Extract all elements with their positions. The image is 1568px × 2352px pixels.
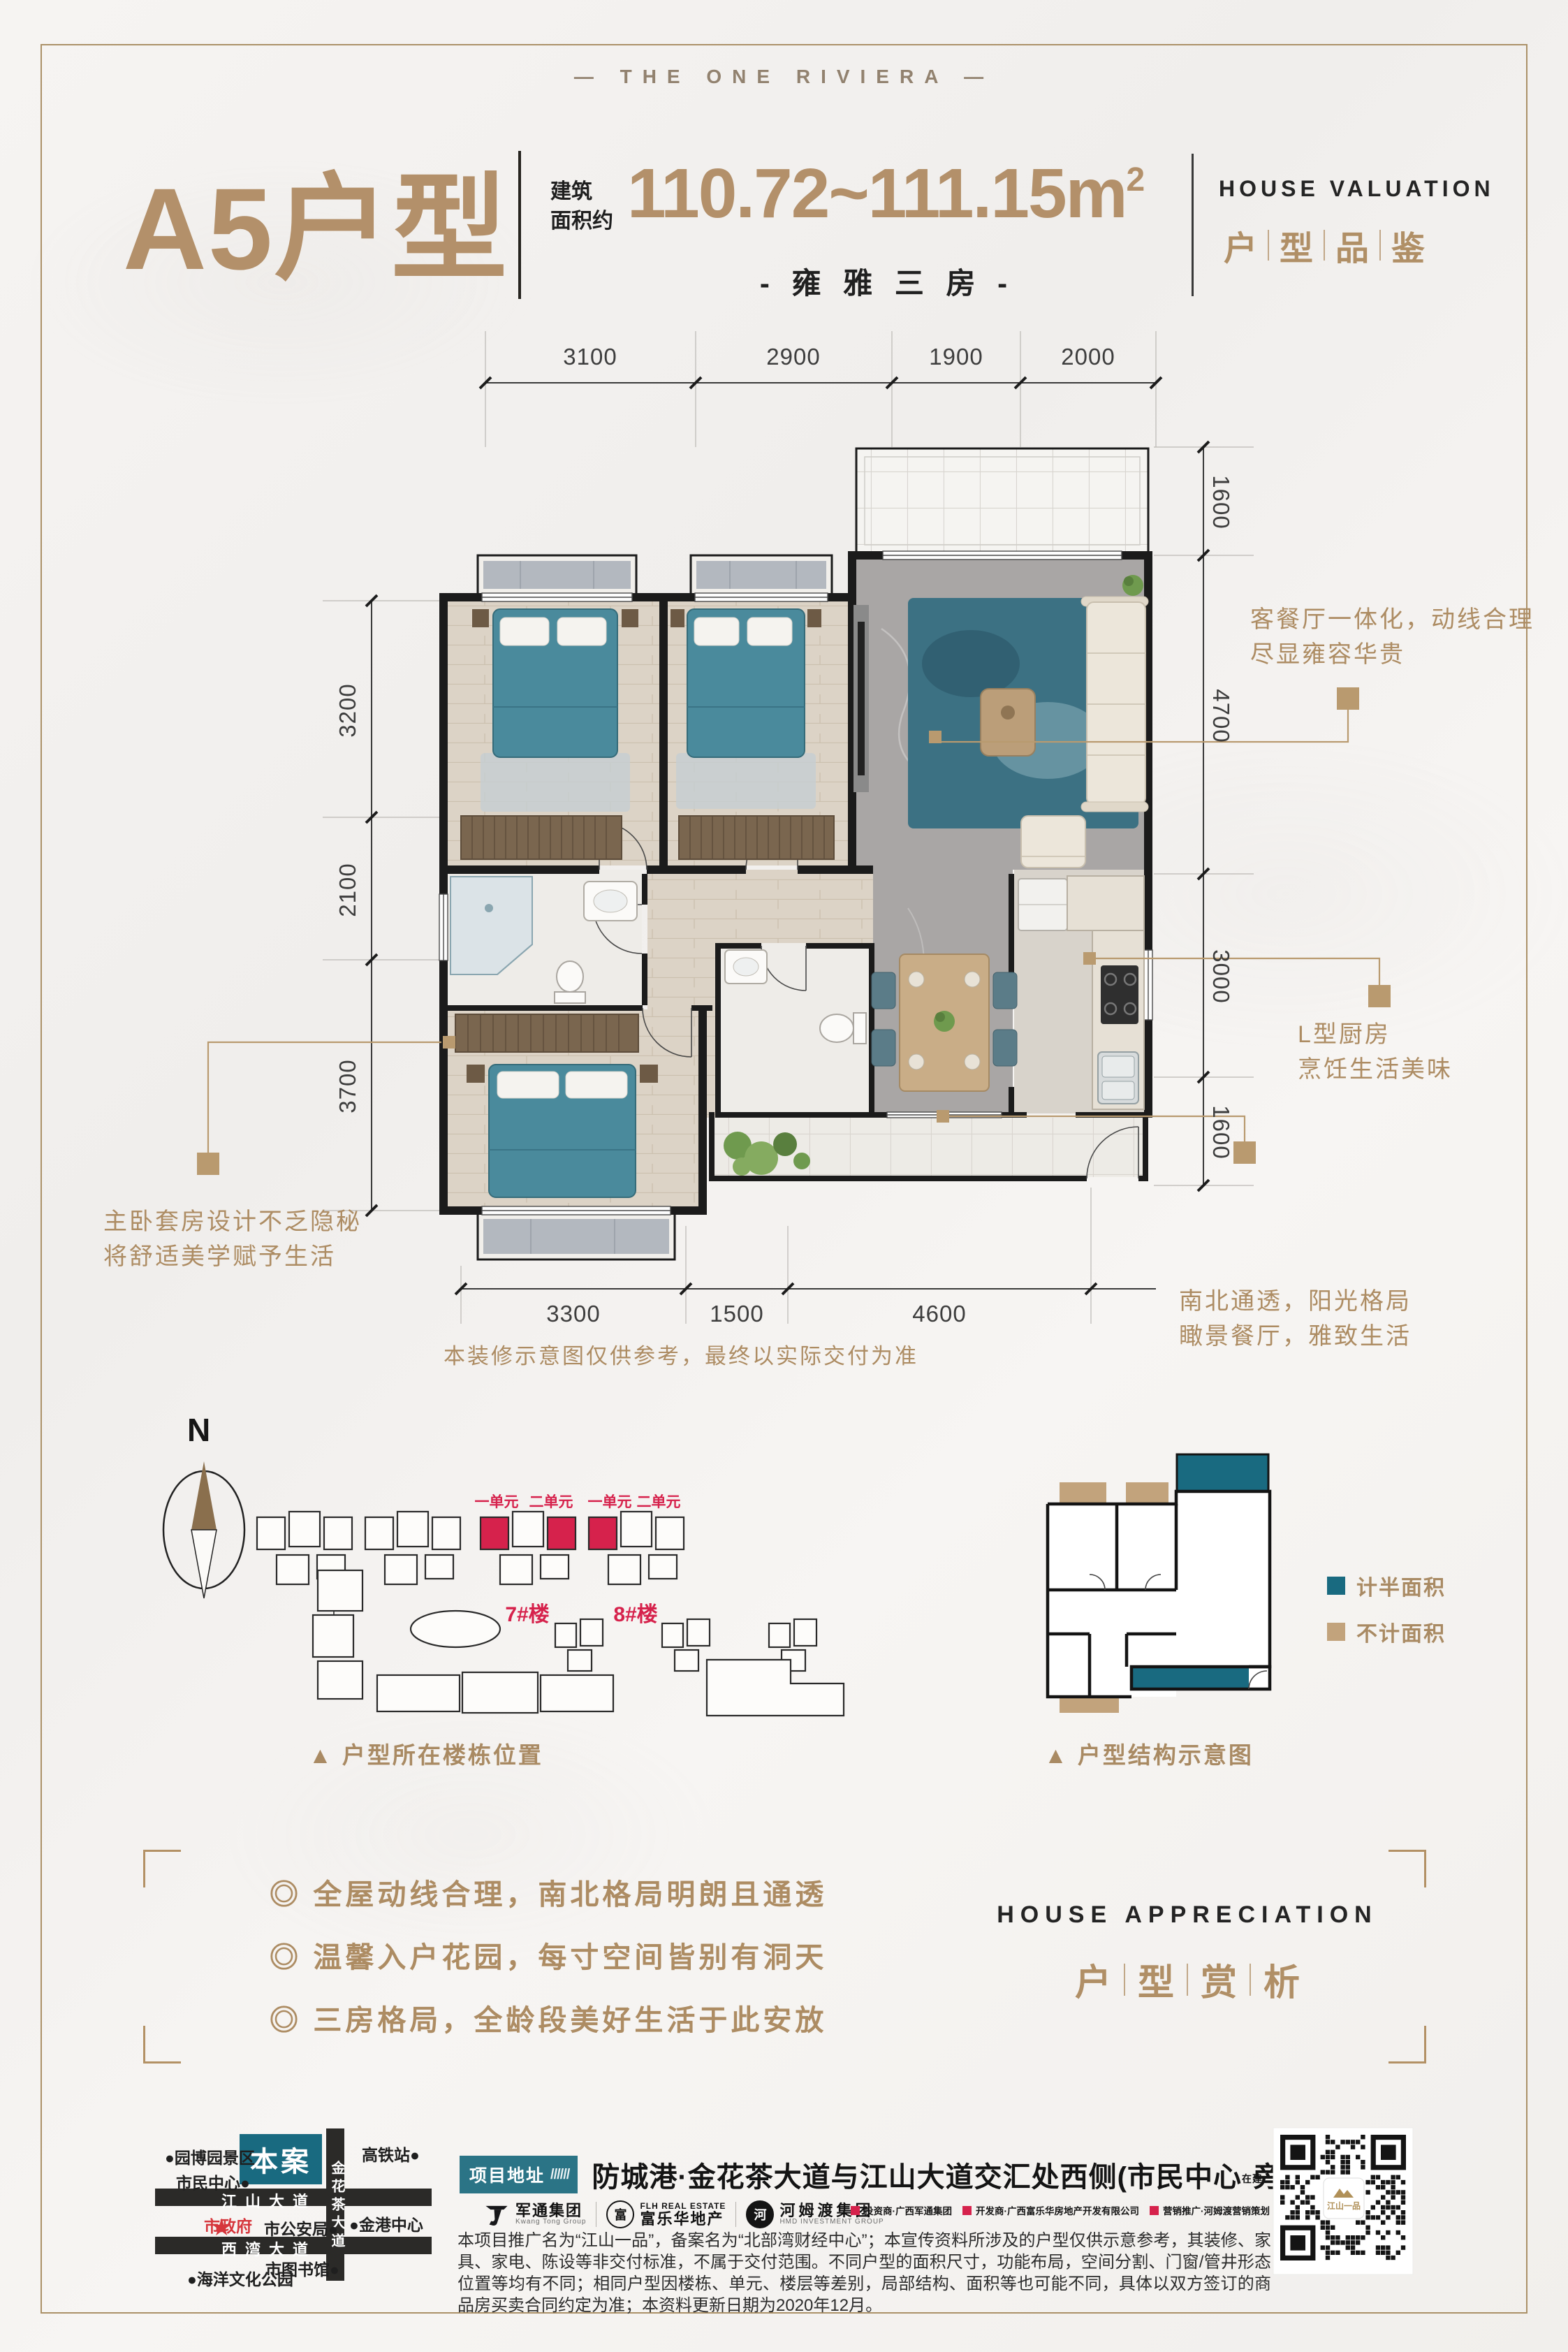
appreciation-title-en: HOUSE APPRECIATION — [978, 1901, 1397, 1929]
unit-label: 二单元 — [631, 1491, 686, 1512]
structure-diagram — [1020, 1450, 1341, 1723]
annotation-line: 烹饪生活美味 — [1298, 1052, 1453, 1087]
section-title-cn: 户 型 品 鉴 — [1224, 221, 1425, 270]
cn-sep — [1268, 230, 1269, 261]
legend-half-area: 计半面积 — [1327, 1570, 1446, 1601]
poi-jingang: ●金港中心 — [349, 2212, 423, 2235]
dim-right-4: 1600 — [1208, 1090, 1234, 1174]
site-plan-caption: ▲ 户型所在楼栋位置 — [286, 1737, 566, 1770]
area-label: 建筑 面积约 — [550, 177, 613, 236]
credit-marketing-text: 营销推广·河姆渡营销策划 — [1163, 2203, 1270, 2217]
logo2-sub: FLH REAL ESTATE — [640, 2202, 726, 2211]
dim-top-3: 1900 — [914, 344, 998, 370]
logo-flh: 富 FLH REAL ESTATE 富乐华地产 — [606, 2200, 726, 2228]
logo-separator — [596, 2202, 596, 2227]
partner-logos: 军通集团 Kwang Tong Group 富 FLH REAL ESTATE … — [483, 2196, 884, 2233]
credit-developer: 开发商·广西富乐华房地产开发有限公司 — [962, 2203, 1139, 2217]
site-other-buildings — [313, 1570, 844, 1716]
dim-bottom-1: 3300 — [532, 1301, 615, 1327]
highlight-item-2: ◎ 温馨入户花园，每寸空间皆别有洞天 — [270, 1934, 827, 1975]
highlight-item-1: ◎ 全屋动线合理，南北格局明朗且通透 — [270, 1871, 827, 1913]
dim-top-1: 3100 — [548, 344, 632, 370]
dim-right-1: 1600 — [1208, 460, 1234, 544]
area-sup: 2 — [1126, 161, 1143, 198]
unit-label: 一单元 — [582, 1491, 637, 1512]
area-label-line1: 建筑 — [550, 177, 613, 207]
unit-label: 二单元 — [524, 1491, 578, 1512]
kwangtong-mark-icon — [483, 2202, 510, 2227]
flh-seal-icon: 富 — [606, 2200, 634, 2228]
dim-top-2: 2900 — [752, 344, 835, 370]
red-square-bullet — [1150, 2206, 1159, 2215]
flh-seal-char: 富 — [614, 2205, 627, 2223]
annotation-line: 主卧套房设计不乏隐秘 — [103, 1204, 362, 1239]
cn-char: 型 — [1138, 1953, 1174, 2006]
area-value: 110.72~111.15m2 — [627, 154, 1143, 234]
address-row: 项目地址 ////// 防城港·金花茶大道与江山大道交汇处西侧(市民中心在建旁) — [460, 2154, 1292, 2195]
bracket-top-left — [143, 1850, 181, 1887]
area-number: 110.72~111.15m — [627, 154, 1126, 233]
structure-caption: ▲ 户型结构示意图 — [1013, 1737, 1285, 1770]
cn-char: 户 — [1224, 221, 1257, 270]
credit-investor: 投资商·广西军通集团 — [851, 2203, 952, 2217]
poi-gaotie: 高铁站● — [362, 2142, 420, 2165]
dim-top-4: 2000 — [1046, 344, 1130, 370]
annotation-balcony: 南北通透，阳光格局 瞰景餐厅，雅致生活 — [1179, 1284, 1412, 1354]
compass-icon — [163, 1461, 244, 1598]
poi-shimin: 市民中心● — [176, 2170, 250, 2193]
poster-page: — THE ONE RIVIERA — A5户型 建筑 面积约 110.72~1… — [0, 0, 1568, 2352]
cn-sep — [1124, 1964, 1125, 1996]
dim-left-1: 3200 — [335, 669, 361, 752]
qr-code: 江山一品 — [1273, 2128, 1413, 2274]
dim-left-3: 3700 — [335, 1044, 361, 1128]
hmd-seal-icon: 河 — [746, 2200, 774, 2228]
poi-haiyang: ●海洋文化公园 — [187, 2266, 293, 2290]
qr-center-card — [1324, 2178, 1364, 2219]
annotation-master: 主卧套房设计不乏隐秘 将舒适美学赋予生活 — [103, 1204, 362, 1274]
hmd-seal-char: 河 — [754, 2205, 766, 2223]
section-title-en: HOUSE VALUATION — [1219, 176, 1495, 202]
logo2-name: 富乐华地产 — [640, 2211, 726, 2227]
unit-title: A5户型 — [123, 166, 508, 294]
brand-wordmark: — THE ONE RIVIERA — — [0, 66, 1568, 88]
appreciation-title-cn: 户 型 赏 析 — [978, 1953, 1397, 2006]
cn-char: 鉴 — [1391, 221, 1425, 270]
logo1-name: 军通集团 — [515, 2203, 586, 2219]
legend-excluded-area: 不计面积 — [1327, 1616, 1446, 1647]
legend-half-swatch — [1327, 1577, 1345, 1595]
credit-developer-text: 开发商·广西富乐华房地产开发有限公司 — [976, 2203, 1139, 2217]
header-divider-1 — [518, 151, 521, 299]
cn-char: 赏 — [1201, 1953, 1237, 2006]
bracket-bottom-left — [143, 2026, 181, 2064]
cn-char: 品 — [1335, 221, 1369, 270]
logo1-sub: Kwang Tong Group — [515, 2219, 586, 2226]
cn-char: 析 — [1263, 1953, 1300, 2006]
legend-half-label: 计半面积 — [1356, 1570, 1446, 1601]
dim-left-2: 2100 — [335, 848, 361, 932]
dim-right-2: 4700 — [1208, 674, 1234, 758]
credits-row: 投资商·广西军通集团 开发商·广西富乐华房地产开发有限公司 营销推广·河姆渡营销… — [851, 2203, 1270, 2217]
poi-gongan: 市公安局● — [264, 2216, 338, 2240]
bracket-top-right — [1389, 1850, 1426, 1887]
address-tag: 项目地址 ////// — [460, 2156, 578, 2193]
logo3-sub: HMD INVESTMENT GROUP — [779, 2219, 884, 2226]
cn-char: 户 — [1075, 1953, 1111, 2006]
project-address: 防城港·金花茶大道与江山大道交汇处西侧(市民中心在建旁) — [592, 2154, 1292, 2195]
highlight-item-3: ◎ 三房格局，全龄段美好生活于此安放 — [270, 1996, 827, 2038]
red-square-bullet — [851, 2206, 860, 2215]
annotation-kitchen: L型厨房 烹饪生活美味 — [1298, 1017, 1453, 1087]
logo-separator — [735, 2202, 736, 2227]
annotation-line: 客餐厅一体化，动线合理 — [1250, 602, 1534, 637]
cn-sep — [1187, 1964, 1188, 1996]
address-tag-slashes: ////// — [550, 2167, 569, 2183]
annotation-line: 南北通透，阳光格局 — [1179, 1284, 1412, 1319]
unit-subtitle: - 雍 雅 三 房 - — [657, 260, 1118, 302]
building-label-7: 7#楼 — [492, 1597, 562, 1628]
site-plan — [161, 1408, 943, 1736]
annotation-line: L型厨房 — [1298, 1017, 1453, 1052]
annotation-line: 将舒适美学赋予生活 — [103, 1239, 362, 1274]
legend-excluded-swatch — [1327, 1623, 1345, 1641]
annotation-line: 瞰景餐厅，雅致生活 — [1179, 1319, 1412, 1354]
address-tag-label: 项目地址 — [469, 2162, 545, 2187]
address-note: 在建 — [1242, 2174, 1254, 2184]
header-divider-2 — [1192, 154, 1194, 296]
qr-center-label: 江山一品 — [1327, 2200, 1361, 2211]
cn-sep — [1324, 230, 1325, 261]
address-main: 防城港·金花茶大道与江山大道交汇处西侧(市民中心 — [592, 2162, 1242, 2193]
area-label-line2: 面积约 — [550, 207, 613, 236]
annotation-living: 客餐厅一体化，动线合理 尽显雍容华贵 — [1250, 602, 1534, 672]
structure-fills — [1048, 1454, 1270, 1713]
red-square-bullet — [962, 2206, 972, 2215]
legal-disclaimer: 本项目推广名为“江山一品”，备案名为“北部湾财经中心”；本宣传资料所涉及的户型仅… — [457, 2230, 1271, 2316]
logo-kwangtong: 军通集团 Kwang Tong Group — [483, 2202, 586, 2227]
dim-right-3: 3000 — [1208, 935, 1234, 1018]
cn-char: 型 — [1280, 221, 1313, 270]
dim-bottom-2: 1500 — [695, 1301, 779, 1327]
legend-excluded-label: 不计面积 — [1356, 1616, 1446, 1647]
poi-yuanbo: ●园博园景区 — [165, 2145, 255, 2168]
credit-investor-text: 投资商·广西军通集团 — [864, 2203, 952, 2217]
cn-sep — [1250, 1964, 1251, 1996]
bracket-bottom-right — [1389, 2026, 1426, 2064]
dim-bottom-3: 4600 — [897, 1301, 981, 1327]
annotation-line: 尽显雍容华贵 — [1250, 637, 1534, 672]
unit-label: 一单元 — [469, 1491, 524, 1512]
credit-marketing: 营销推广·河姆渡营销策划 — [1150, 2203, 1270, 2217]
building-label-8: 8#楼 — [601, 1597, 671, 1628]
plan-disclaimer-note: 本装修示意图仅供参考，最终以实际交付为准 — [381, 1338, 981, 1370]
cn-sep — [1379, 230, 1381, 261]
city-gov-star-icon: ★ — [211, 2216, 232, 2240]
